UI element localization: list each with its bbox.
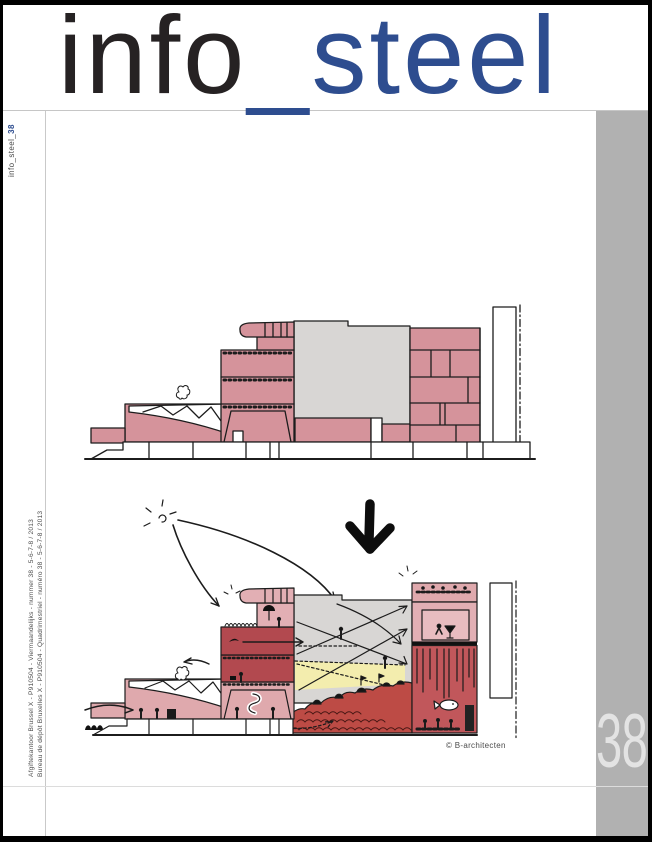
down-arrow-icon	[350, 504, 390, 549]
masthead-title-black: info	[58, 0, 247, 117]
event-room	[422, 610, 469, 640]
page-border-top	[0, 0, 652, 5]
plinth	[91, 442, 530, 459]
spine-label: info_steel_38	[7, 124, 16, 177]
magazine-cover: info_steel info_steel_38 Afgiftekantoor …	[0, 0, 652, 842]
footer-rule	[3, 786, 648, 787]
masonry-block	[410, 328, 480, 446]
page-border-left	[0, 0, 3, 842]
page-border-right	[648, 0, 652, 842]
top-section-drawing	[83, 293, 543, 473]
smoke-icon	[176, 386, 189, 400]
masthead-title-blue: _steel	[247, 0, 559, 117]
masthead-title: info_steel	[58, 1, 559, 111]
service-tower	[493, 307, 516, 443]
service-tower	[490, 583, 512, 698]
issue-number: 38	[596, 712, 647, 773]
page-border-bottom	[0, 836, 652, 842]
spine-label-issue: 38	[7, 124, 16, 134]
smoke-icon	[175, 667, 188, 681]
postal-line-fr: Bureau de dépôt Bruxelles X - P910504 - …	[36, 511, 45, 777]
visor-roof	[240, 588, 294, 603]
queue-people	[85, 725, 103, 730]
sparkle-icon	[144, 500, 176, 526]
postal-info: Afgiftekantoor Brussel X - P910504 - Vie…	[27, 511, 45, 777]
architect-credit: © B-architecten	[446, 741, 506, 750]
postal-line-nl: Afgiftekantoor Brussel X - P910504 - Vie…	[27, 511, 36, 777]
visor-roof	[240, 322, 294, 337]
annotated-section-drawing	[83, 493, 553, 770]
spine-label-prefix: info_steel_	[7, 134, 16, 177]
tower-band1	[221, 627, 294, 655]
left-margin-rule	[45, 111, 46, 836]
